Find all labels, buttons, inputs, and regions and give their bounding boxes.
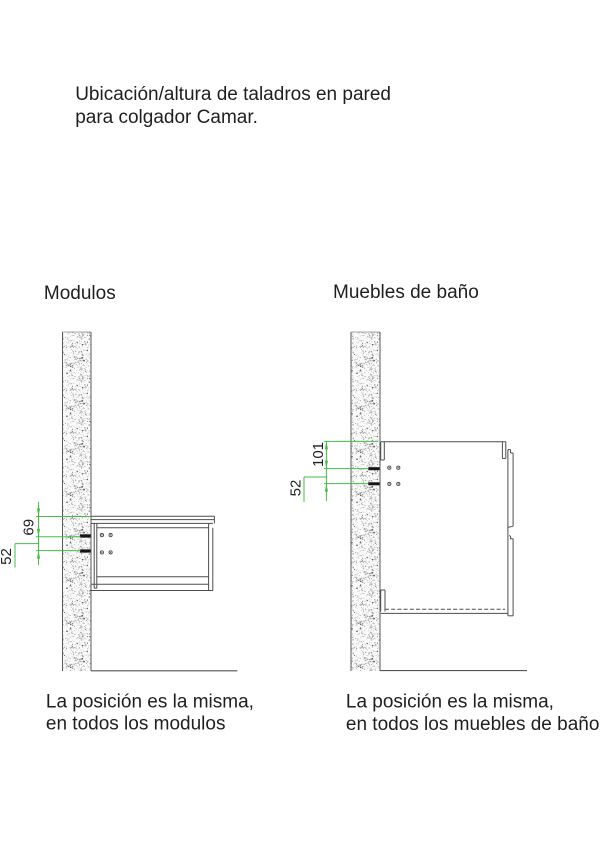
svg-text:para colgador Camar.: para colgador Camar.: [75, 107, 258, 128]
svg-text:101: 101: [310, 442, 327, 467]
svg-text:La posición es la misma,: La posición es la misma,: [346, 692, 554, 713]
svg-text:52: 52: [0, 548, 15, 565]
svg-text:69: 69: [20, 519, 37, 536]
svg-text:Ubicación/altura de taladros e: Ubicación/altura de taladros en pared: [75, 84, 391, 105]
svg-text:Muebles de baño: Muebles de baño: [333, 282, 479, 303]
svg-text:en todos los modulos: en todos los modulos: [46, 713, 226, 734]
svg-text:en todos los muebles de baño: en todos los muebles de baño: [346, 714, 600, 735]
svg-text:52: 52: [287, 480, 304, 497]
svg-text:La posición es la misma,: La posición es la misma,: [46, 691, 254, 712]
svg-text:Modulos: Modulos: [44, 283, 116, 304]
